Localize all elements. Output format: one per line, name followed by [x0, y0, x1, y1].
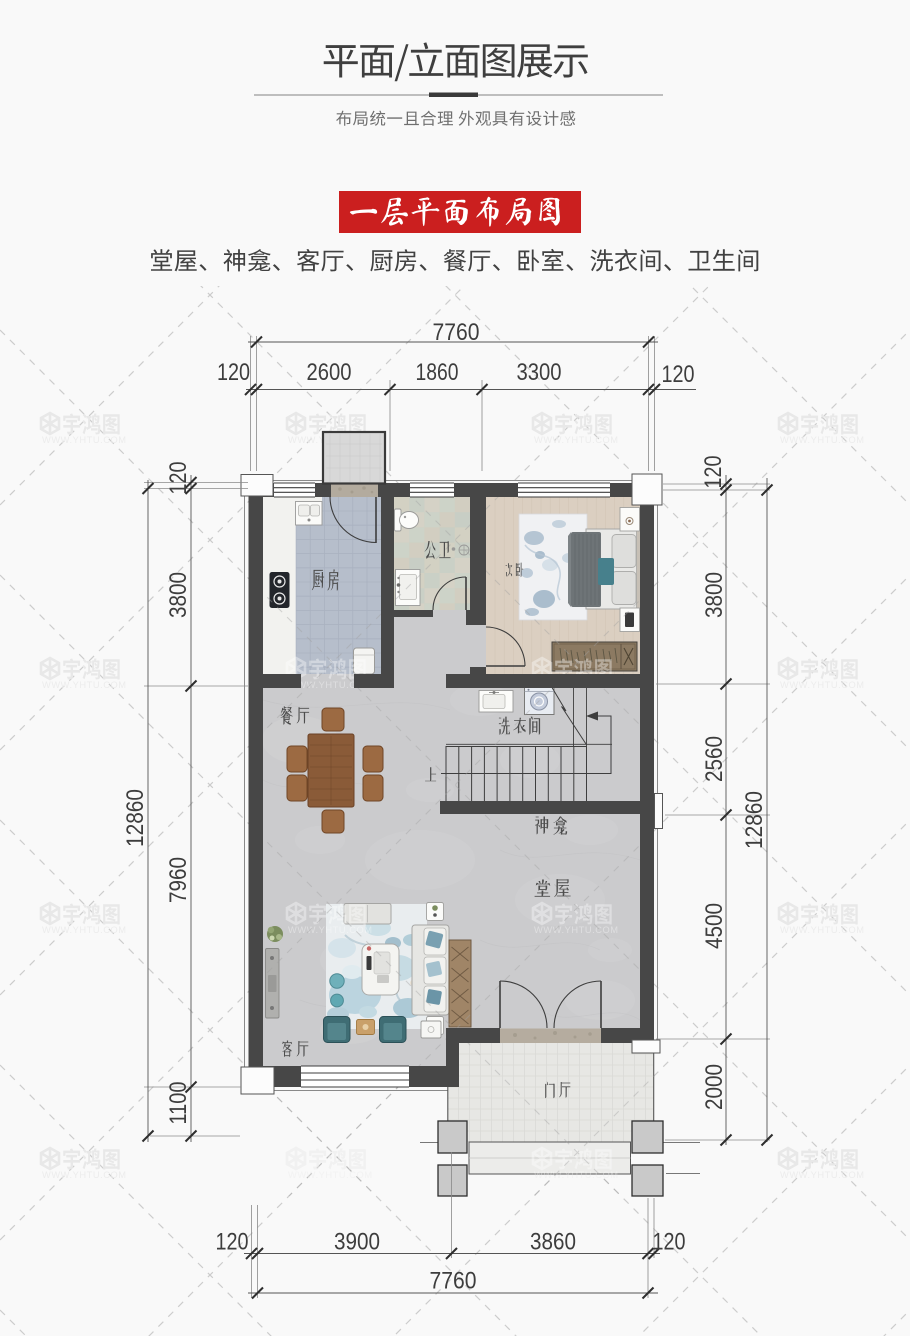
svg-text:12860: 12860	[122, 789, 149, 847]
svg-text:120: 120	[700, 456, 727, 489]
svg-text:4500: 4500	[701, 903, 728, 949]
svg-text:12860: 12860	[741, 791, 768, 849]
svg-text:120: 120	[165, 462, 192, 495]
svg-text:7960: 7960	[165, 857, 192, 903]
svg-text:2000: 2000	[701, 1064, 728, 1110]
svg-text:120: 120	[217, 359, 250, 386]
svg-text:3300: 3300	[517, 359, 562, 386]
svg-text:3860: 3860	[530, 1229, 576, 1256]
svg-text:3800: 3800	[165, 572, 192, 618]
svg-text:2560: 2560	[701, 736, 728, 782]
svg-text:1100: 1100	[165, 1082, 192, 1125]
svg-text:7760: 7760	[430, 1268, 477, 1295]
svg-text:120: 120	[662, 361, 695, 388]
svg-text:7760: 7760	[433, 319, 480, 346]
svg-text:120: 120	[653, 1229, 686, 1256]
svg-text:2600: 2600	[307, 359, 352, 386]
svg-text:1860: 1860	[416, 359, 459, 386]
svg-text:120: 120	[216, 1229, 249, 1256]
svg-text:3800: 3800	[701, 572, 728, 618]
svg-text:3900: 3900	[334, 1229, 380, 1256]
